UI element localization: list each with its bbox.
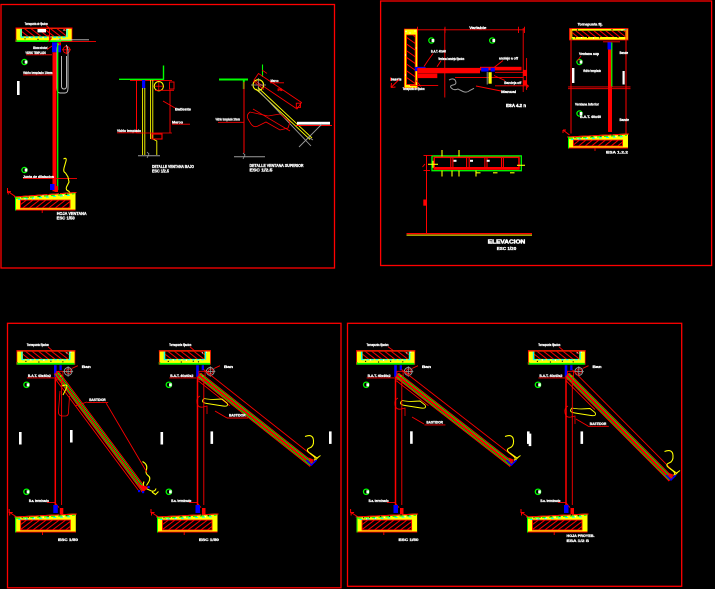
svg-text:Tornapunta fij.: Tornapunta fij. [578,22,603,26]
svg-text:Tornapunta fijacion: Tornapunta fijacion [27,343,49,347]
svg-text:Batiente: Batiente [175,107,191,111]
svg-text:ESC 1/50: ESC 1/50 [57,216,76,221]
svg-text:B.A.T. 40x40: B.A.T. 40x40 [580,115,601,119]
svg-text:Vidrio templado 10mm: Vidrio templado 10mm [23,70,53,75]
svg-text:B.a. terminado: B.a. terminado [369,499,390,503]
svg-text:ESC 1/20: ESC 1/20 [497,246,517,251]
svg-text:Ventana sup: Ventana sup [579,52,600,56]
svg-text:Ban: Ban [593,365,602,369]
svg-text:B.a. terminado: B.a. terminado [171,499,192,503]
svg-text:B.A.T. 40x40: B.A.T. 40x40 [431,50,446,54]
svg-text:Vidrio templado 10mm: Vidrio templado 10mm [216,118,241,122]
svg-text:Ventana inferior: Ventana inferior [575,102,599,106]
svg-text:ESA 1/2 S: ESA 1/2 S [567,538,590,543]
svg-text:Bandeja off: Bandeja off [504,81,522,85]
svg-text:5%: 5% [278,88,283,92]
svg-text:Bande: Bande [620,51,629,55]
svg-text:B.a. terminado: B.a. terminado [29,499,50,503]
svg-text:BASTIDOR: BASTIDOR [229,414,246,418]
svg-text:ESC 1/50: ESC 1/50 [199,537,220,542]
svg-text:VIDRIO TEMPLADO: VIDRIO TEMPLADO [26,51,47,55]
svg-text:ESC 1/2.5: ESC 1/2.5 [250,167,274,172]
svg-text:Bande: Bande [620,118,630,122]
svg-text:ESC 1/50: ESC 1/50 [58,537,79,542]
svg-text:Tornapunta de fijacion: Tornapunta de fijacion [403,87,425,91]
svg-text:ELEVACION: ELEVACION [488,240,526,246]
svg-text:Manual: Manual [501,90,516,94]
svg-text:Tornapunta fijacion: Tornapunta fijacion [538,343,560,347]
svg-text:anclaje a off: anclaje a off [499,57,519,61]
svg-text:BASTIDOR: BASTIDOR [426,421,443,425]
svg-text:ESA 1.2.2: ESA 1.2.2 [606,149,629,154]
svg-text:Tornapunta fijacion: Tornapunta fijacion [367,343,389,347]
svg-text:BASTIDOR: BASTIDOR [590,422,607,426]
svg-text:Variable: Variable [469,26,486,30]
svg-text:Tornapunta de fijacion: Tornapunta de fijacion [25,21,48,26]
svg-text:Ventana bandeja fijacion: Ventana bandeja fijacion [438,57,464,61]
svg-text:B.a. terminado: B.a. terminado [540,499,561,503]
svg-text:Marco: Marco [172,120,184,124]
svg-text:Silicona estructural: Silicona estructural [33,46,48,50]
svg-text:BASTIDOR: BASTIDOR [89,398,106,402]
svg-text:ESA 4.2 n: ESA 4.2 n [506,103,526,108]
svg-text:Ban: Ban [422,365,431,369]
svg-text:B.A.T. 40x40x2: B.A.T. 40x40x2 [28,374,51,378]
svg-text:B.A.T. 40x40x2: B.A.T. 40x40x2 [368,374,391,378]
svg-text:Vidrio templado: Vidrio templado [583,69,601,73]
svg-text:Tornapunta fijacion: Tornapunta fijacion [169,343,191,347]
svg-text:ESC 1/50: ESC 1/50 [399,537,420,542]
svg-text:Bassls: Bassls [390,78,402,82]
svg-text:Ban: Ban [82,365,91,369]
svg-text:Ban: Ban [224,365,233,369]
svg-text:ESC 1/2.5: ESC 1/2.5 [152,168,170,173]
svg-text:Marco: Marco [271,79,280,83]
svg-text:B.A.T. 40x40x2: B.A.T. 40x40x2 [170,374,193,378]
svg-text:B.A.T. 40x40x2: B.A.T. 40x40x2 [539,374,562,378]
